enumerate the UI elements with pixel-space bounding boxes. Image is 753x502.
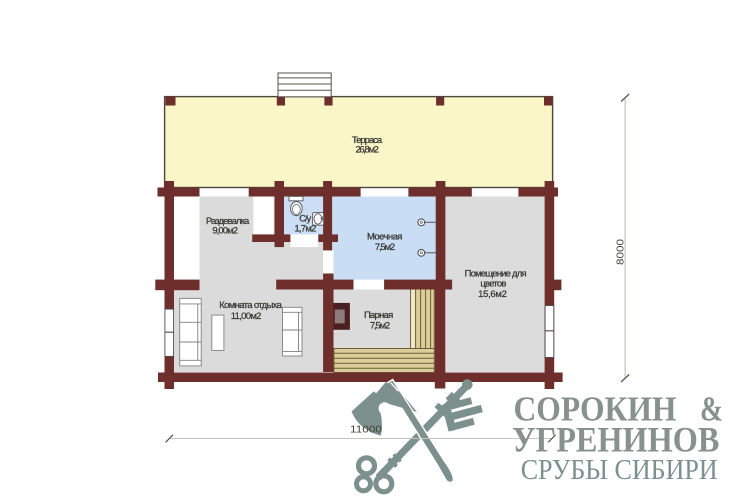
svg-text:8000: 8000: [616, 238, 627, 265]
svg-text:Комната отдыха: Комната отдыха: [219, 300, 282, 311]
svg-text:7,5м2: 7,5м2: [370, 321, 390, 332]
svg-text:УГРЕНИНОВ: УГРЕНИНОВ: [512, 420, 719, 460]
svg-text:11,00м2: 11,00м2: [231, 311, 262, 322]
svg-text:11000: 11000: [350, 424, 383, 435]
svg-text:26,8м2: 26,8м2: [356, 145, 379, 156]
svg-text:1,7м2: 1,7м2: [294, 223, 316, 234]
svg-text:15,6м2: 15,6м2: [478, 289, 507, 300]
svg-text:7,5м2: 7,5м2: [375, 242, 395, 253]
svg-text:СРУБЫ СИБИРИ: СРУБЫ СИБИРИ: [521, 455, 718, 486]
svg-text:Моечная: Моечная: [367, 231, 403, 242]
svg-text:9,00м2: 9,00м2: [212, 226, 238, 237]
